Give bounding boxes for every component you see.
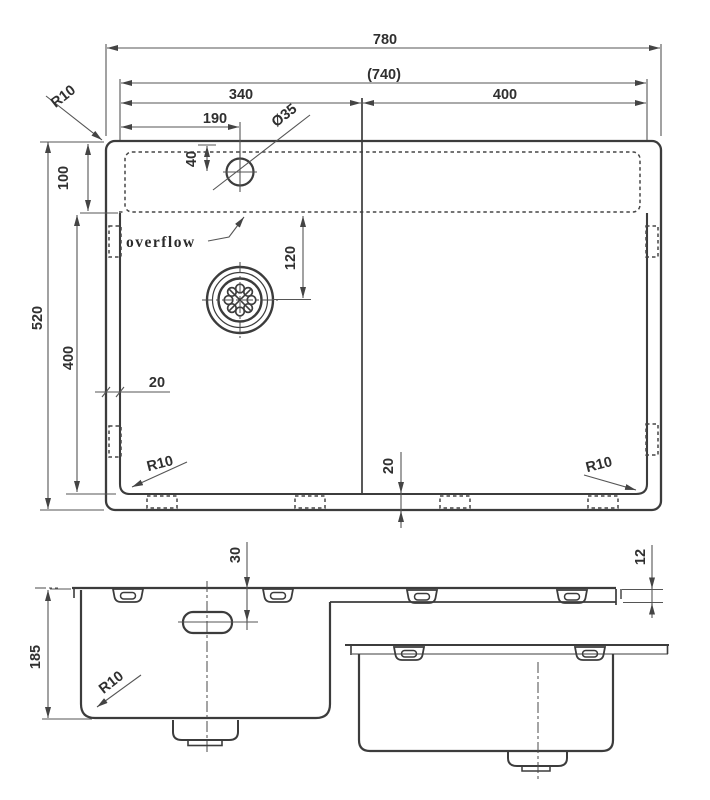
clip-profile — [113, 589, 143, 602]
dim-185-label: 185 — [28, 645, 44, 669]
dim-30-label: 30 — [228, 547, 244, 563]
r10-bottom-right-label: R10 — [584, 454, 614, 476]
dim-20-left-label: 20 — [149, 375, 165, 391]
dim-400-left-label: 400 — [61, 346, 77, 370]
section-view: 185 30 12 R10 — [28, 542, 669, 782]
clip-mark — [440, 496, 470, 508]
bowl-inner-outline — [120, 213, 647, 494]
r10-section-label: R10 — [96, 668, 127, 697]
overflow-label: overflow — [126, 234, 196, 251]
sink-outer-outline — [106, 141, 661, 510]
r10-leader-bottom-right — [584, 475, 636, 490]
dim-20-bottom-label: 20 — [381, 458, 397, 474]
section-dimensions: 185 30 12 R10 — [28, 542, 663, 719]
dim-12-label: 12 — [633, 549, 649, 565]
dim-190-label: 190 — [203, 111, 227, 127]
dim-740-label: (740) — [367, 67, 401, 83]
right-bowl-profile — [345, 645, 669, 782]
dim-40-label: 40 — [184, 151, 200, 167]
dim-100-label: 100 — [56, 166, 72, 190]
right-drain-profile — [522, 766, 550, 771]
plan-view: 780 (740) 340 400 190 Ø35 40 100 520 — [30, 32, 661, 528]
clip-mark — [588, 496, 618, 508]
drain-strainer-icon — [202, 262, 278, 338]
dim-520-label: 520 — [30, 306, 46, 330]
r10-top-left-label: R10 — [48, 82, 79, 111]
sink-technical-drawing: 780 (740) 340 400 190 Ø35 40 100 520 — [0, 0, 710, 800]
overflow-leader — [208, 217, 244, 241]
clip-profile — [407, 590, 437, 603]
clip-profile — [263, 589, 293, 602]
dim-340-label: 340 — [229, 87, 253, 103]
left-bowl-profile — [81, 590, 330, 718]
rear-ledge-hidden-edge — [125, 152, 640, 212]
clip-mark — [147, 496, 177, 508]
dim-780-label: 780 — [373, 32, 397, 48]
r10-bottom-left-label: R10 — [145, 453, 175, 475]
dim-400-top-label: 400 — [493, 87, 517, 103]
plan-dimensions: 780 (740) 340 400 190 Ø35 40 100 520 — [30, 32, 661, 528]
clip-profile — [557, 590, 587, 603]
clip-mark — [295, 496, 325, 508]
left-drain-profile — [173, 720, 238, 746]
overflow-slot-icon — [178, 612, 258, 633]
dim-120-label: 120 — [283, 246, 299, 270]
drawing-canvas: 780 (740) 340 400 190 Ø35 40 100 520 — [0, 0, 710, 800]
